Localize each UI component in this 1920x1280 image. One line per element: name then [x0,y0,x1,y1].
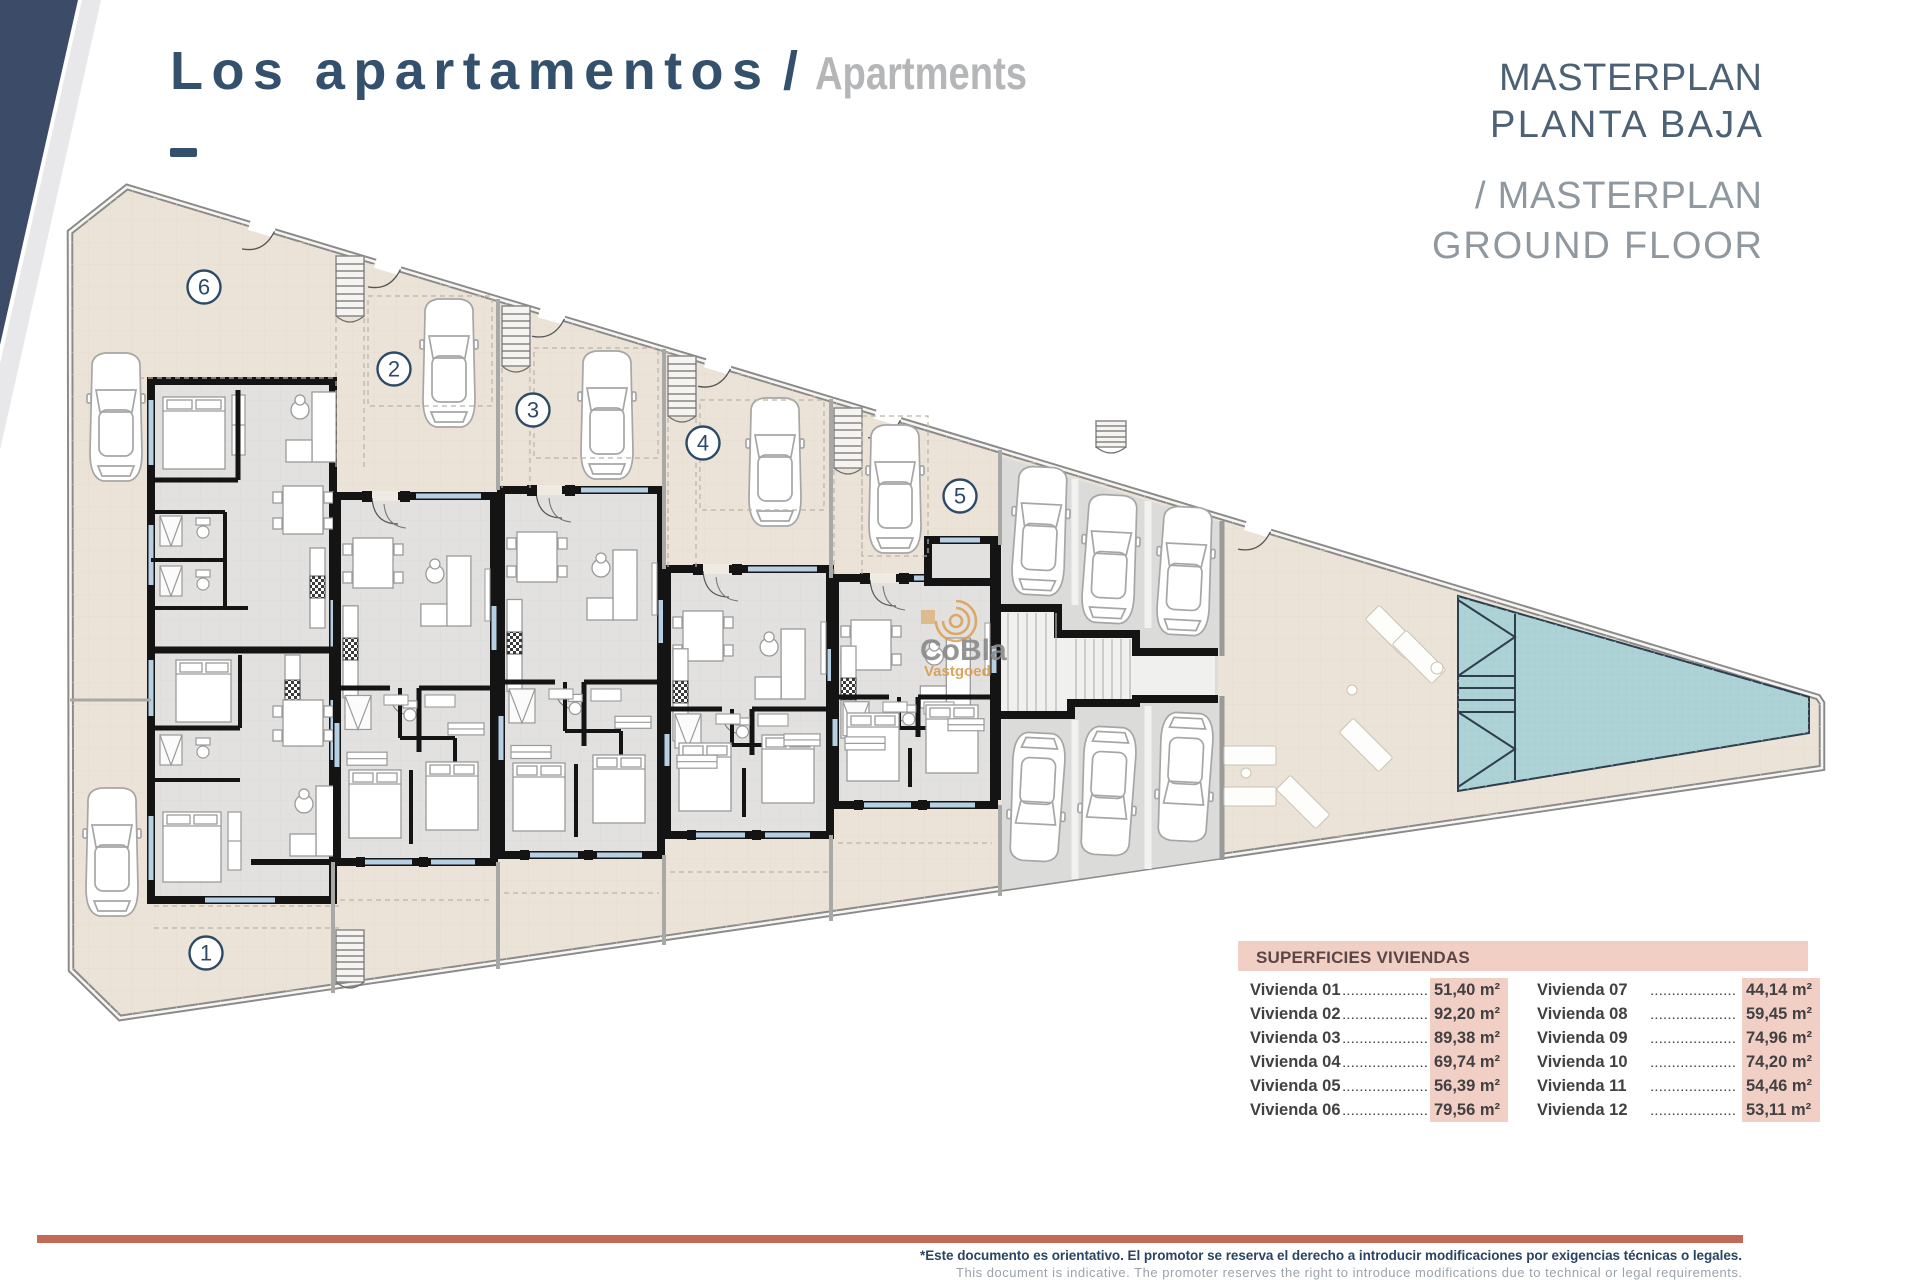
svg-text:Vivienda 12: Vivienda 12 [1537,1101,1628,1119]
svg-text:56,39 m²: 56,39 m² [1434,1077,1501,1095]
svg-text:....................: .................... [1342,1006,1428,1022]
svg-text:....................: .................... [1342,1030,1428,1046]
svg-text:Vivienda 11: Vivienda 11 [1537,1077,1627,1095]
svg-text:Vivienda 06: Vivienda 06 [1250,1101,1341,1119]
svg-text:PLANTA BAJA: PLANTA BAJA [1490,104,1763,146]
svg-text:89,38 m²: 89,38 m² [1434,1029,1501,1047]
svg-text:MASTERPLAN: MASTERPLAN [1499,57,1762,99]
svg-text:....................: .................... [1342,982,1428,998]
svg-text:Vivienda 04: Vivienda 04 [1250,1053,1341,1071]
svg-text:2: 2 [388,357,400,382]
svg-text:54,46 m²: 54,46 m² [1746,1077,1813,1095]
svg-text:74,96 m²: 74,96 m² [1746,1029,1813,1047]
svg-text:51,40 m²: 51,40 m² [1434,981,1501,999]
svg-text:Vivienda 09: Vivienda 09 [1537,1029,1628,1047]
svg-text:53,11 m²: 53,11 m² [1746,1101,1812,1119]
svg-text:4: 4 [697,431,709,456]
svg-text:....................: .................... [1650,1078,1736,1094]
svg-text:SUPERFICIES VIVIENDAS: SUPERFICIES VIVIENDAS [1256,948,1470,967]
svg-text:....................: .................... [1650,1102,1736,1118]
svg-text:6: 6 [198,275,210,300]
svg-text:3: 3 [527,398,539,423]
svg-text:*Este documento es orientativo: *Este documento es orientativo. El promo… [920,1248,1742,1263]
svg-text:5: 5 [954,484,966,509]
svg-text:Vivienda 08: Vivienda 08 [1537,1005,1628,1023]
svg-text:Vivienda 01: Vivienda 01 [1250,981,1341,999]
svg-text:....................: .................... [1342,1102,1428,1118]
svg-text:44,14 m²: 44,14 m² [1746,981,1813,999]
svg-text:....................: .................... [1650,1030,1736,1046]
svg-text:Vivienda 02: Vivienda 02 [1250,1005,1341,1023]
svg-text:74,20 m²: 74,20 m² [1746,1053,1813,1071]
svg-text:79,56 m²: 79,56 m² [1434,1101,1501,1119]
svg-text:Vivienda 10: Vivienda 10 [1537,1053,1628,1071]
svg-text:....................: .................... [1650,1006,1736,1022]
svg-text:59,45 m²: 59,45 m² [1746,1005,1813,1023]
svg-text:Vivienda 07: Vivienda 07 [1537,981,1628,999]
svg-text:/: / [783,41,798,101]
svg-text:....................: .................... [1342,1054,1428,1070]
svg-text:....................: .................... [1650,1054,1736,1070]
svg-text:Apartments: Apartments [815,47,1027,99]
svg-text:This document is indicative. T: This document is indicative. The promote… [956,1265,1742,1280]
svg-text:Vivienda 05: Vivienda 05 [1250,1077,1341,1095]
svg-text:Vastgoed: Vastgoed [924,663,991,680]
svg-text:/ MASTERPLAN: / MASTERPLAN [1475,175,1762,217]
svg-text:1: 1 [200,941,212,966]
svg-text:69,74 m²: 69,74 m² [1434,1053,1501,1071]
svg-text:Los apartamentos: Los apartamentos [170,41,762,101]
svg-text:....................: .................... [1650,982,1736,998]
svg-text:Vivienda 03: Vivienda 03 [1250,1029,1341,1047]
svg-text:92,20 m²: 92,20 m² [1434,1005,1501,1023]
svg-text:....................: .................... [1342,1078,1428,1094]
svg-text:GROUND FLOOR: GROUND FLOOR [1432,225,1762,267]
